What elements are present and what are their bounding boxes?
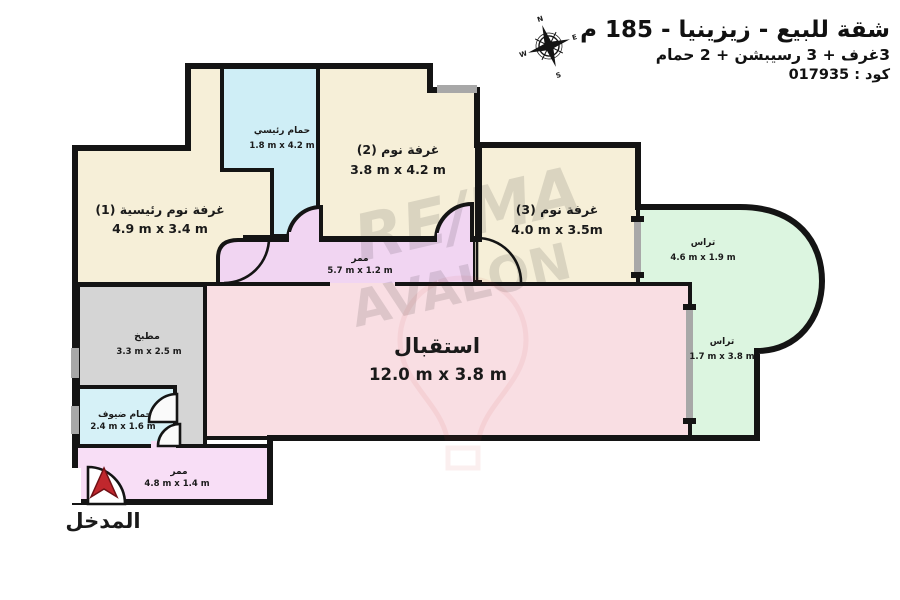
dims-reception: 12.0 m x 3.8 m	[369, 365, 507, 384]
label-bedroom-3: غرفة نوم (3)	[516, 202, 599, 218]
window-guestbath-left	[71, 406, 79, 434]
window-top	[437, 85, 477, 93]
title-block: شقة للبيع - زيزينيا - 185 م 3غرف + 3 رسي…	[580, 16, 890, 85]
label-reception: استقبال	[394, 334, 480, 358]
window-kitchen-left	[71, 348, 79, 378]
compass-icon: N E S W	[510, 6, 588, 88]
opening-entrance	[70, 468, 81, 503]
dims-master-bedroom: 4.9 m x 3.4 m	[112, 221, 208, 236]
label-kitchen: مطبخ	[134, 331, 160, 342]
dims-main-bathroom: 1.8 m x 4.2 m	[249, 141, 314, 151]
compass-s: S	[555, 71, 562, 80]
window-cap	[631, 216, 644, 222]
opening-bathroom-door	[289, 232, 315, 243]
dims-guest-bathroom: 2.4 m x 1.6 m	[90, 422, 155, 432]
window-reception-terrace	[686, 310, 693, 418]
dims-hallway: 5.7 m x 1.2 m	[327, 266, 392, 276]
listing-subtitle: 3غرف + 3 رسيبشن + 2 حمام	[580, 45, 890, 66]
label-master-bedroom: غرفة نوم رئيسية (1)	[95, 202, 224, 218]
label-bedroom-2: غرفة نوم (2)	[357, 142, 440, 158]
dims-bedroom-2: 3.8 m x 4.2 m	[350, 162, 446, 177]
compass-w: W	[518, 49, 528, 59]
compass-n: N	[536, 15, 544, 24]
window-cap	[683, 304, 696, 310]
label-terrace-1: تراس	[691, 238, 715, 248]
dims-kitchen: 3.3 m x 2.5 m	[116, 347, 181, 357]
floorplan-canvas: RE/MA AVALON N E S W غرفة نوم رئيسية (1)…	[0, 0, 900, 600]
window-cap	[631, 272, 644, 278]
dims-entry-hall: 4.8 m x 1.4 m	[144, 479, 209, 489]
floorplan-page: RE/MA AVALON N E S W غرفة نوم رئيسية (1)…	[0, 0, 900, 600]
listing-title: شقة للبيع - زيزينيا - 185 م	[580, 16, 890, 45]
compass-e: E	[571, 33, 578, 42]
dims-terrace-1: 4.6 m x 1.9 m	[670, 253, 735, 263]
label-hallway: ممر	[350, 254, 368, 264]
label-guest-bathroom: حمام ضيوف	[98, 410, 152, 420]
dims-bedroom-3: 4.0 m x 3.5m	[511, 222, 602, 237]
label-terrace-2: تراس	[710, 337, 734, 347]
window-bedroom3-terrace	[634, 222, 641, 272]
window-cap	[683, 418, 696, 424]
entrance-label: المدخل	[65, 509, 140, 533]
label-entry-hall: ممر	[169, 467, 187, 477]
label-main-bathroom: حمام رئيسي	[254, 126, 310, 136]
dims-terrace-2: 1.7 m x 3.8 m	[689, 352, 754, 362]
listing-code: كود : 017935	[580, 66, 890, 86]
